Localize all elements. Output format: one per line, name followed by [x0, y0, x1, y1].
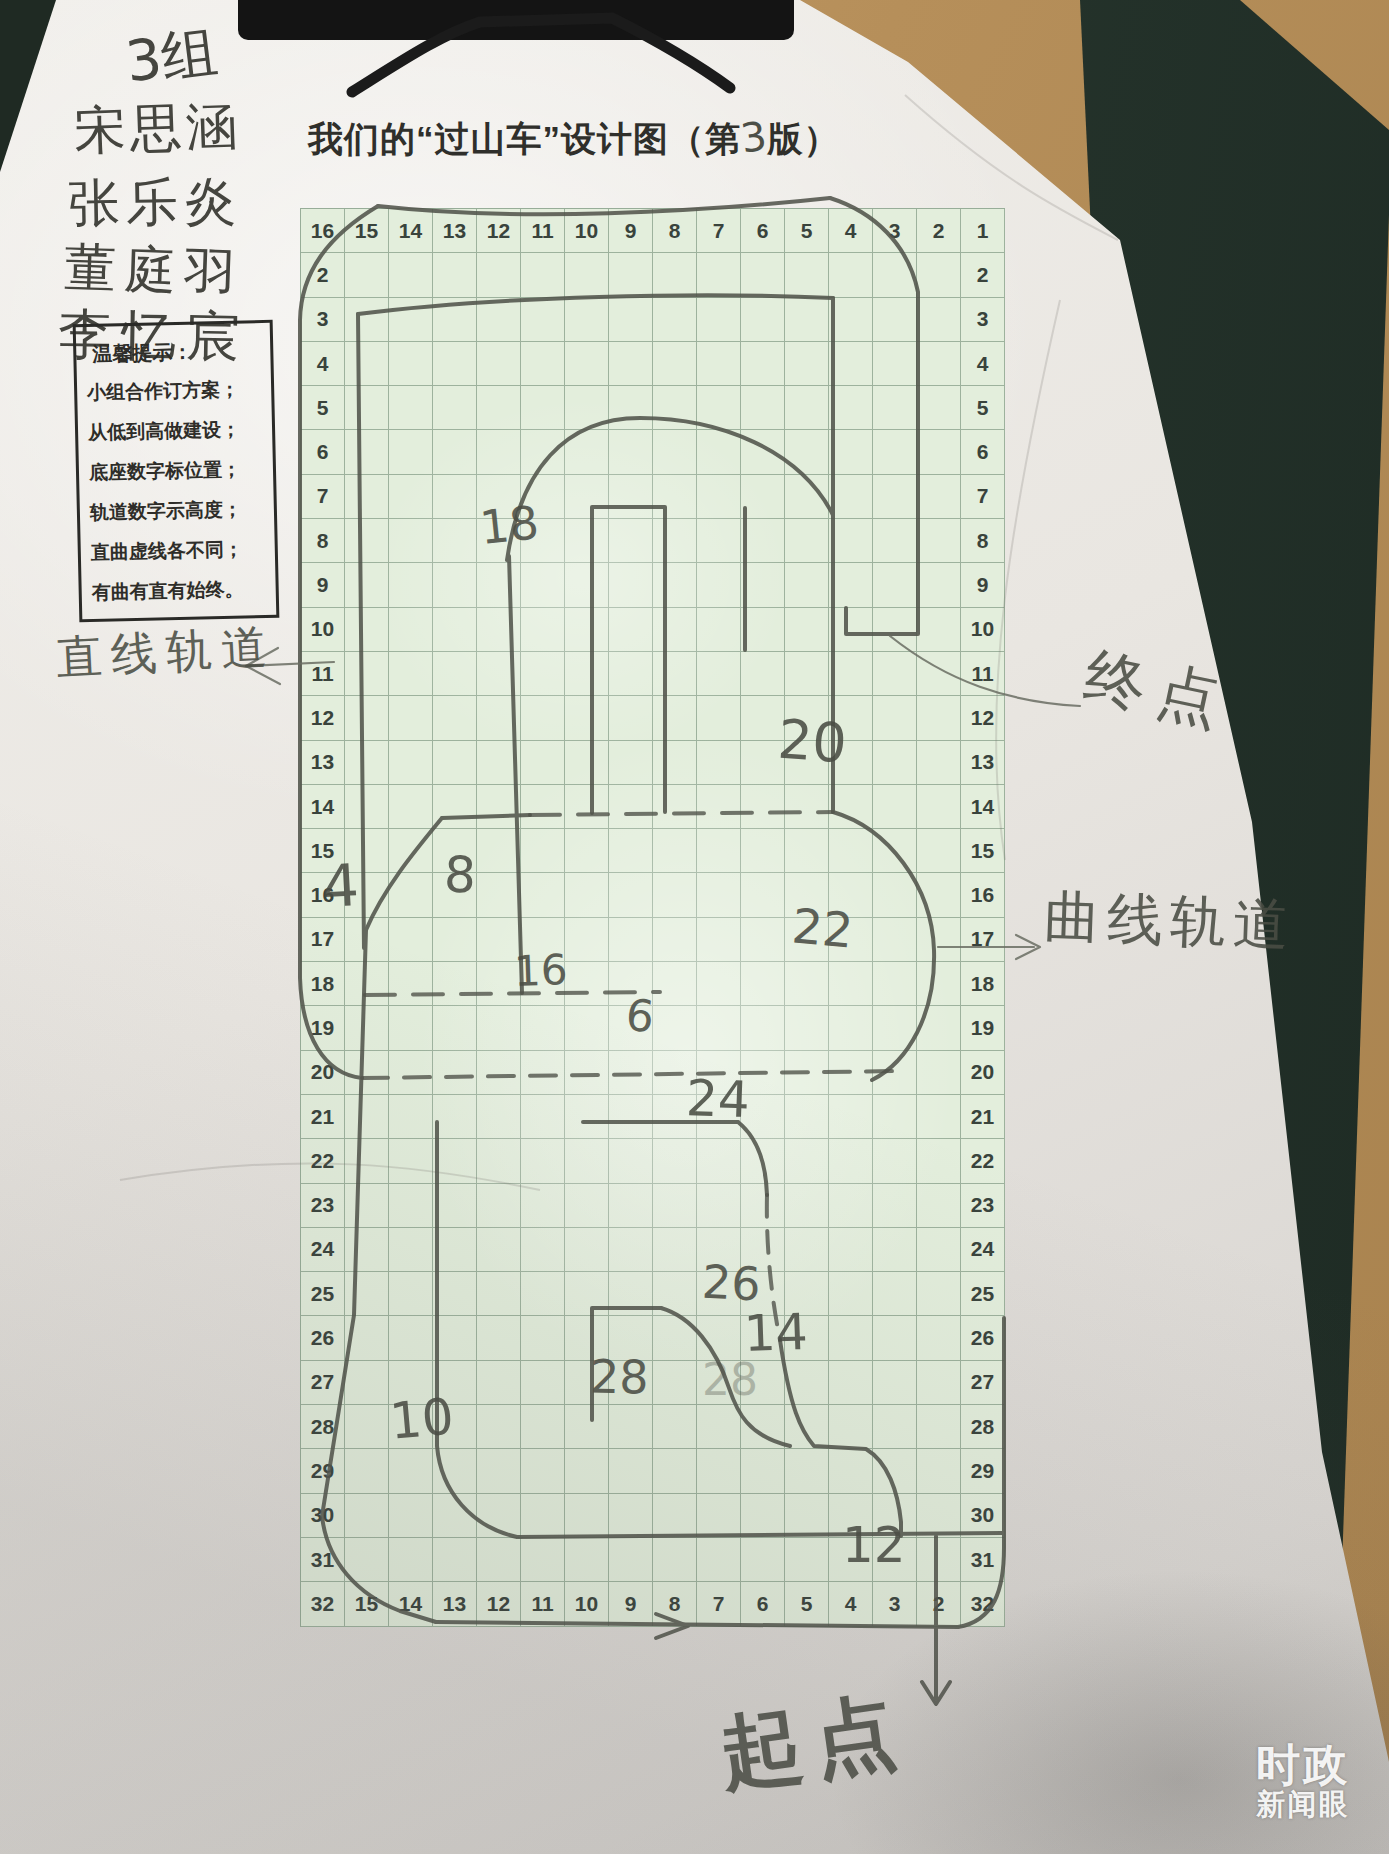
tips-line: 直曲虚线各不同；	[90, 529, 269, 573]
end-point-pointer-line	[890, 636, 1080, 706]
track-inner-vertical-b	[509, 556, 522, 993]
track-lower-left	[322, 930, 436, 1622]
track-bottom-horizontal	[436, 1622, 958, 1627]
track-inner-bottom-horizontal	[518, 1533, 1002, 1537]
middle-loop-left-diagonal	[366, 818, 442, 930]
member-name: 张乐炎	[67, 166, 242, 239]
track-height-number: 20	[776, 708, 849, 776]
track-height-number: 16	[513, 945, 568, 996]
label-curved-track: 曲线轨道	[1043, 880, 1297, 965]
watermark-line2: 新闻眼	[1218, 1788, 1388, 1820]
track-right-stair-bottom	[780, 1340, 901, 1536]
dashed-track-row20	[362, 1071, 900, 1078]
member-name: 董庭羽	[63, 233, 245, 309]
watermark: 时政 新闻眼	[1218, 1742, 1388, 1820]
start-point-arrow	[922, 1536, 950, 1704]
tips-line: 从低到高做建设；	[88, 409, 267, 453]
track-inner-rectangle	[592, 507, 665, 813]
track-height-number: 24	[685, 1069, 751, 1129]
track-bottom-right-curve	[958, 1318, 1004, 1627]
track-height-number: 22	[790, 897, 856, 958]
paper-crease-line	[120, 1163, 540, 1190]
track-hump-arc	[507, 418, 833, 560]
track-height-number: 8	[443, 845, 477, 904]
track-inner-vertical-c	[437, 1122, 517, 1537]
track-right-stair-top	[738, 1122, 767, 1195]
track-height-number: 10	[388, 1387, 456, 1450]
straight-track-vertical	[358, 314, 364, 948]
tips-line: 小组合作订方案；	[87, 369, 266, 413]
tips-box: 温馨提示： 小组合作订方案； 从低到高做建设； 底座数字标位置； 轨道数字示高度…	[73, 320, 280, 622]
clip-wire-handle	[352, 18, 730, 92]
track-height-number: 18	[477, 495, 541, 555]
curved-track-pointer-line	[938, 935, 1040, 959]
track-height-number: 28	[702, 1354, 758, 1405]
track-height-number: 28	[590, 1349, 649, 1404]
track-height-number: 12	[842, 1516, 906, 1574]
tips-line: 有曲有直有始终。	[91, 569, 270, 613]
tips-line: 底座数字标位置；	[89, 449, 268, 493]
paper-crease-line	[996, 300, 1060, 860]
watermark-line1: 时政	[1218, 1742, 1388, 1788]
track-right-descent-endpoint	[830, 198, 918, 634]
dashed-middle-loop-top	[530, 812, 833, 815]
track-height-number: 6	[623, 989, 656, 1043]
tips-heading: 温馨提示：	[86, 331, 265, 373]
clipboard-clip-wire	[0, 0, 1389, 140]
dashed-track-row18	[365, 992, 660, 995]
label-straight-track: 直线轨道	[55, 616, 278, 689]
track-height-number: 26	[701, 1255, 762, 1312]
track-upper-horizontal	[358, 295, 833, 314]
track-top-edge	[378, 198, 830, 214]
track-height-number: 4	[320, 851, 360, 921]
tips-line: 轨道数字示高度；	[89, 489, 268, 533]
